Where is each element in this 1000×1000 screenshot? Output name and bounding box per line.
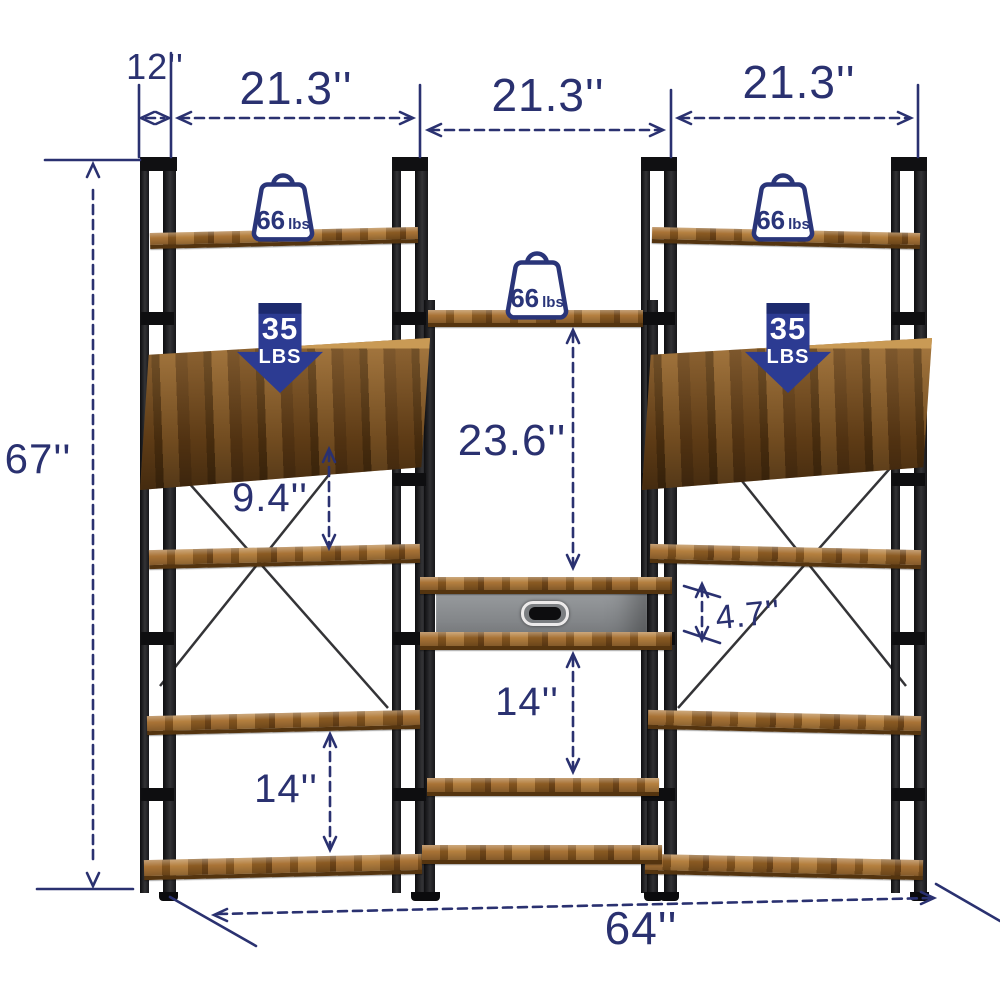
dim-label-center-upper-gap: 23.6'' [458, 419, 566, 463]
dim-label-depth: 12'' [126, 49, 184, 85]
dimension-lines [0, 0, 1000, 1000]
dim-label-height-total: 67'' [5, 438, 72, 480]
dim-label-shelf-lower-gap: 14'' [254, 769, 318, 809]
dim-label-width-left: 21.3'' [239, 65, 352, 111]
dim-label-drawer-height: 4.7'' [714, 595, 782, 636]
dim-label-magazine-gap: 9.4'' [232, 478, 308, 518]
dim-label-width-center: 21.3'' [491, 72, 604, 118]
product-dimension-diagram: 66 lbs 66 lbs 66 lbs 35 LBS [0, 0, 1000, 1000]
dim-label-center-lower-gap: 14'' [495, 682, 559, 722]
dim-label-width-total: 64'' [605, 905, 678, 951]
dim-label-width-right: 21.3'' [742, 59, 855, 105]
